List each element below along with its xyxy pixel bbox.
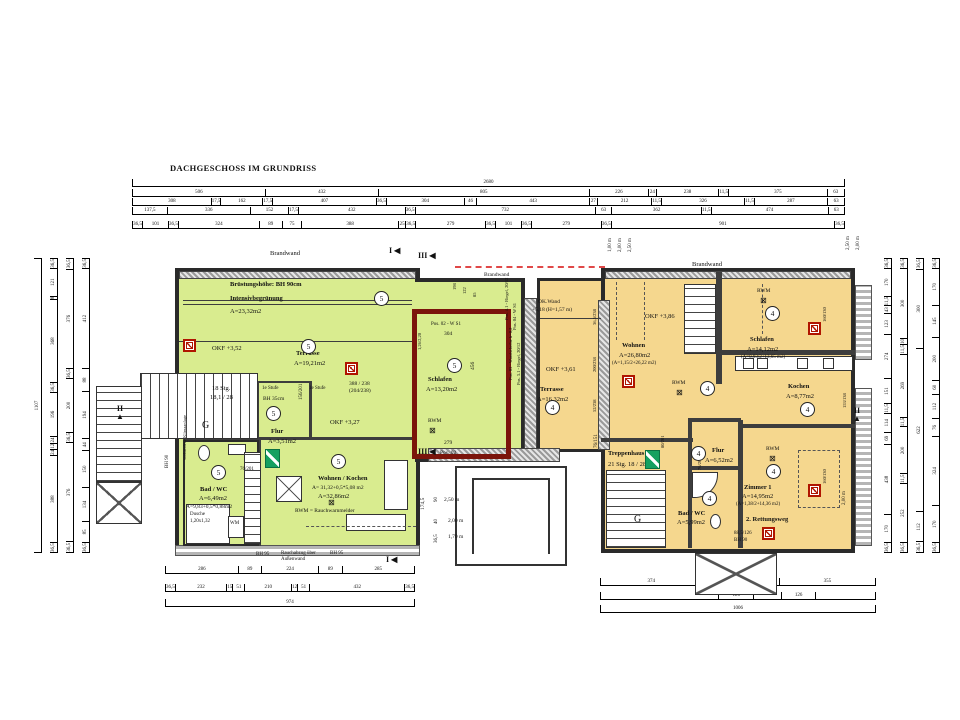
dimension-segment: 36,5 bbox=[66, 542, 73, 553]
plan-text: Wohnen bbox=[622, 342, 645, 349]
plan-text: RWM bbox=[428, 418, 441, 424]
dimension-segment: 11,5 bbox=[900, 418, 907, 428]
dimension-segment: 438 bbox=[884, 445, 891, 516]
dimension-segment: 36,5 bbox=[601, 221, 611, 228]
dimension-segment: 123 bbox=[884, 314, 891, 335]
dimension-chain-bottom-left-2: 36,52321551210125143236,5 bbox=[165, 584, 415, 592]
dimension-segment: 11,5 bbox=[900, 345, 907, 355]
plan-text: Bad / WC bbox=[200, 486, 227, 493]
dimension-segment: 36,5 bbox=[916, 542, 923, 553]
plan-text: 80/201 bbox=[660, 435, 665, 448]
smoke-detector-icon: ⊠ bbox=[328, 499, 335, 507]
plan-text: Brandwand bbox=[270, 250, 300, 257]
dimension-segment: 112 bbox=[916, 512, 923, 542]
dimension-segment: 17,5 bbox=[211, 198, 221, 205]
room-number-badge: 5 bbox=[301, 339, 316, 354]
plan-text: 40 bbox=[434, 519, 440, 524]
smoke-detector-icon: ⊠ bbox=[760, 297, 767, 305]
dimension-segment: 126 bbox=[781, 592, 816, 599]
schlafen-highlight-outline bbox=[412, 309, 511, 459]
dimension-segment: 506 bbox=[132, 189, 265, 196]
plan-text: 2,00 m bbox=[856, 236, 862, 250]
plan-text: 76/151 bbox=[594, 434, 600, 448]
escape-window-icon bbox=[808, 484, 821, 497]
dimension-segment: 11,5 bbox=[744, 198, 754, 205]
plan-text: G bbox=[202, 420, 209, 432]
plan-text: 90 bbox=[434, 497, 440, 502]
dimension-segment: 194 bbox=[82, 392, 89, 440]
roof-slope-dashed-box bbox=[798, 450, 840, 508]
dimension-segment: 11,5 bbox=[718, 189, 728, 196]
dimension-segment: 388 bbox=[50, 456, 57, 543]
dimension-segment: 46 bbox=[464, 198, 477, 205]
dimension-chain-left-3: 36,537636,520036,537636,5 bbox=[66, 258, 74, 553]
plan-text: 2,50 m bbox=[444, 497, 459, 503]
dimension-segment: 36,5 bbox=[884, 258, 891, 269]
roof-slope-dashed bbox=[616, 282, 617, 340]
dimension-segment: 170 bbox=[884, 515, 891, 543]
escape-window-icon bbox=[622, 375, 635, 388]
wall bbox=[716, 272, 722, 384]
dimension-segment: 279 bbox=[415, 221, 485, 228]
plan-text: 18 Stg. bbox=[212, 385, 230, 392]
appliance bbox=[797, 358, 808, 369]
dimension-segment: 101 bbox=[495, 221, 521, 228]
outside-stair-lower bbox=[96, 482, 142, 524]
plan-text: 85 bbox=[472, 293, 477, 298]
plan-text: Pos. 02 bbox=[440, 450, 456, 456]
plan-text: A=14,12m2 bbox=[747, 346, 778, 353]
plan-text: 52/238 bbox=[592, 399, 597, 412]
dimension-segment: 27 bbox=[589, 198, 597, 205]
dimension-segment: 36,5 bbox=[376, 198, 386, 205]
plan-text: 122 bbox=[462, 287, 467, 294]
plan-text: Flur bbox=[712, 447, 724, 454]
roof-slope-dashed bbox=[644, 282, 645, 340]
dimension-segment: 36,5 bbox=[932, 543, 939, 553]
dimension-segment: 308 bbox=[132, 198, 211, 205]
plan-text: G bbox=[634, 514, 641, 526]
dimension-segment: 25 bbox=[398, 221, 405, 228]
plan-text: A=14,95m2 bbox=[742, 493, 773, 500]
escape-window-icon bbox=[808, 322, 821, 335]
plan-text: 88,5/126 bbox=[734, 531, 752, 537]
dimension-chain-left-4: 36,585134150441948841236,5 bbox=[82, 258, 90, 553]
dimension-segment: 17,5 bbox=[288, 207, 298, 214]
dimension-segment: 287 bbox=[754, 198, 827, 205]
dimension-segment: 170 bbox=[932, 506, 939, 543]
plan-text: OK.Wand bbox=[538, 299, 560, 305]
dimension-segment: 200 bbox=[66, 379, 73, 432]
stairwell-left bbox=[140, 373, 258, 439]
escape-window-icon bbox=[345, 362, 358, 375]
smoke-detector-icon: ⊠ bbox=[429, 427, 436, 435]
dimension-segment: 85 bbox=[82, 522, 89, 544]
dimension-chain-right-4: 36,5170324761126020014517036,5 bbox=[932, 258, 940, 553]
plan-text: Bad / WC bbox=[678, 510, 705, 517]
room-number-badge: 5 bbox=[266, 406, 281, 421]
room-number-badge: 4 bbox=[700, 381, 715, 396]
plan-text: Außenwand bbox=[281, 557, 305, 563]
plan-text: RWM bbox=[672, 380, 685, 386]
plan-text: 1e Stufe bbox=[262, 386, 279, 392]
plan-text: 2,50 m bbox=[628, 238, 634, 252]
section-marker-iii: III ◀ bbox=[418, 447, 436, 456]
plan-text: 388 / 238 bbox=[349, 381, 370, 387]
roof-slope-dashed bbox=[306, 526, 416, 527]
dimension-segment: 732 bbox=[415, 207, 595, 214]
plan-text: 36,5/238 bbox=[592, 309, 597, 325]
dimension-segment: 36,5 bbox=[132, 221, 142, 228]
dimension-segment: 101 bbox=[142, 221, 168, 228]
plan-text: Pos. 04 - W S1 bbox=[512, 303, 517, 330]
dimension-segment: 279 bbox=[531, 221, 601, 228]
section-marker-ii: II ▲ bbox=[853, 407, 861, 423]
wall-hatch-window-right bbox=[598, 300, 610, 450]
dimension-segment: 269 bbox=[900, 355, 907, 418]
plan-text: Kochen bbox=[788, 383, 809, 390]
dimension-segment: 11,5 bbox=[651, 198, 661, 205]
plan-text: WM bbox=[230, 521, 239, 527]
section-marker-i: I ◀ bbox=[386, 555, 397, 564]
dimension-chain-bottom-right-3: 1006 bbox=[600, 605, 876, 613]
dimension-segment: 326 bbox=[661, 198, 744, 205]
dimension-segment: 36,5 bbox=[404, 584, 415, 591]
brandwand-dashed-line bbox=[455, 266, 605, 268]
dimension-segment: 11,5 bbox=[701, 207, 711, 214]
plan-text: Pos. 4.1 - Riegel, 20/12 bbox=[504, 278, 509, 320]
dimension-segment: 368 bbox=[50, 300, 57, 383]
dimension-chain-right-3: 36,511262230036,5 bbox=[916, 258, 924, 553]
room-number-badge: 4 bbox=[702, 491, 717, 506]
plan-text: A=13,20m2 bbox=[426, 386, 457, 393]
plan-text: Zimmer 1 bbox=[744, 484, 772, 491]
dimension-segment: 412 bbox=[82, 269, 89, 370]
dimension-segment: 60 bbox=[932, 381, 939, 395]
dimension-segment: 300 bbox=[916, 270, 923, 349]
plan-text: A=6,49m2 bbox=[199, 495, 227, 502]
dimension-segment: 76 bbox=[932, 419, 939, 436]
dimension-segment: 196 bbox=[50, 393, 57, 438]
dimension-segment: 88 bbox=[82, 369, 89, 391]
plan-text: Treppenhaus bbox=[608, 450, 644, 457]
dimension-segment: 407 bbox=[272, 198, 376, 205]
terrace-line bbox=[179, 341, 416, 342]
room-number-badge: 5 bbox=[374, 291, 389, 306]
plan-text: A=8,77m2 bbox=[786, 393, 814, 400]
plan-text: 2. Rettungsweg bbox=[746, 516, 788, 523]
dimension-segment: 152 bbox=[250, 207, 288, 214]
plan-text: A=6,52m2 bbox=[705, 457, 733, 464]
plan-text: RWM = Rauchwarnmelder bbox=[295, 508, 355, 514]
plan-text: Pos. 3.1 - Riegel, 20/12 bbox=[516, 343, 521, 385]
plan-text: 279 bbox=[444, 440, 452, 446]
dimension-segment: 901 bbox=[611, 221, 834, 228]
dimension-segment: 36,5 bbox=[405, 207, 415, 214]
dimension-segment: 63 bbox=[827, 189, 845, 196]
room-number-badge: 4 bbox=[766, 464, 781, 479]
wall bbox=[716, 350, 855, 355]
plan-text: RWM bbox=[757, 288, 770, 294]
plan-text: (A=0,93/2+13,65 m2) bbox=[741, 355, 785, 361]
dimension-segment: 36,5 bbox=[884, 543, 891, 553]
dimension-segment: 63 bbox=[828, 207, 845, 214]
section-marker-i: I ◀ bbox=[389, 246, 400, 255]
dimension-chain-top-5: 36,510136,532489753882536,527936,510136,… bbox=[132, 221, 845, 229]
room-number-badge: 4 bbox=[800, 402, 815, 417]
plan-text: 160/130 bbox=[822, 307, 827, 322]
sofa bbox=[346, 514, 406, 531]
plan-text: A=3,51m2 bbox=[268, 438, 296, 445]
plan-text: (A=1,15/2+26,22 m2) bbox=[612, 361, 656, 367]
dimension-chain-top-4: 137,533615217,543236,57326336211,547463 bbox=[132, 207, 845, 215]
dimension-segment: 112 bbox=[932, 395, 939, 420]
plan-text: 1,20x1,32 bbox=[190, 519, 210, 525]
dimension-segment: 145 bbox=[932, 306, 939, 338]
plan-text: 1,26/2,20 bbox=[417, 333, 422, 350]
dimension-segment: 432 bbox=[265, 189, 378, 196]
dimension-segment: 622 bbox=[916, 349, 923, 512]
dimension-segment: 324 bbox=[932, 437, 939, 507]
dimension-segment: 36,5 bbox=[900, 258, 907, 269]
dimension-segment: 376 bbox=[66, 270, 73, 369]
plan-text: 174,5 bbox=[420, 498, 426, 510]
plan-text: 153/138 bbox=[842, 393, 847, 408]
dimension-chain-right-1: 36,51704386911411,51512741234311,517036,… bbox=[884, 258, 892, 553]
dimension-segment: 24 bbox=[50, 437, 57, 443]
dimension-segment: 432 bbox=[309, 584, 404, 591]
plan-text: BH 95 bbox=[330, 551, 343, 557]
plan-text: (A=1,38/2+14,36 m2) bbox=[736, 502, 780, 508]
plan-text: Dusche bbox=[190, 512, 205, 518]
plan-text: vorhandene Klimaanlage bbox=[182, 415, 187, 460]
outside-stair bbox=[96, 386, 142, 482]
dimension-segment: 974 bbox=[165, 599, 415, 606]
plan-text: Wohnen / Kochen bbox=[318, 475, 367, 482]
plan-text: 198 bbox=[452, 283, 457, 290]
dimension-chain-right-2: 36,525211,520011,526911,51030036,5 bbox=[900, 258, 908, 553]
plan-text: BH 90 bbox=[165, 455, 171, 468]
room-number-badge: 5 bbox=[447, 358, 462, 373]
plan-text: A=19,21m2 bbox=[294, 360, 325, 367]
plan-text: Brandwand bbox=[692, 261, 722, 268]
plan-text: BH 90 bbox=[734, 538, 747, 544]
dimension-segment: 36,5 bbox=[66, 433, 73, 444]
dimension-chain-bottom-left-3: 974 bbox=[165, 599, 415, 607]
wall-hatch-top-left bbox=[179, 271, 416, 279]
plan-text: 156/201 bbox=[299, 384, 305, 400]
wall bbox=[688, 466, 741, 470]
plan-text: 1,70 m bbox=[448, 534, 463, 540]
plan-text: 2,00 m bbox=[448, 518, 463, 524]
dimension-segment: 151 bbox=[884, 379, 891, 404]
dimension-segment: 355 bbox=[779, 578, 876, 585]
dimension-segment: 374 bbox=[600, 578, 701, 585]
dimension-segment: 51 bbox=[297, 584, 309, 591]
dimension-segment: 362 bbox=[611, 207, 701, 214]
appliance bbox=[823, 358, 834, 369]
dimension-segment: 150 bbox=[82, 451, 89, 488]
dimension-segment: 805 bbox=[378, 189, 588, 196]
plan-text: A=26,80m2 bbox=[619, 352, 650, 359]
plan-text: OKF +3,52 bbox=[212, 345, 242, 352]
dimension-segment: 89 bbox=[318, 566, 341, 573]
dimension-segment: 44 bbox=[82, 439, 89, 451]
plan-text: Rauchabzug über bbox=[281, 551, 316, 557]
plan-text: 18,1 / 28 bbox=[210, 394, 233, 401]
room-number-badge: 5 bbox=[331, 454, 346, 469]
dimension-segment: 114 bbox=[884, 414, 891, 433]
plan-text: 2,00 m bbox=[842, 491, 848, 505]
dimension-segment: 36,5 bbox=[82, 258, 89, 269]
smoke-detector-icon: ⊠ bbox=[769, 455, 776, 463]
dimension-segment: 224 bbox=[261, 566, 318, 573]
plan-text: 36,5 bbox=[434, 534, 440, 543]
dimension-segment: 238 bbox=[656, 189, 719, 196]
washing-machine bbox=[228, 516, 244, 538]
shaft-inner bbox=[472, 478, 550, 554]
dimension-segment: 89 bbox=[238, 566, 261, 573]
room-number-badge: 4 bbox=[545, 400, 560, 415]
dimension-segment: 63 bbox=[827, 198, 845, 205]
dimension-segment: 274 bbox=[884, 335, 891, 379]
dimension-segment: 200 bbox=[932, 338, 939, 381]
dimension-segment: 11,5 bbox=[900, 474, 907, 484]
dimension-segment: 1107 bbox=[34, 258, 41, 553]
plan-text: OKF +3,27 bbox=[330, 419, 360, 426]
plan-text: 304 bbox=[444, 331, 452, 337]
stove bbox=[276, 476, 302, 502]
dimension-segment: 324 bbox=[178, 221, 259, 228]
dimension-segment: 2680 bbox=[132, 179, 845, 186]
wall bbox=[601, 438, 693, 442]
floor-plan-sheet: DACHGESCHOSS IM GRUNDRISS 2680 506432805… bbox=[0, 0, 960, 720]
plan-text: Brüstungshöhe: BH 90cm bbox=[230, 281, 302, 288]
plan-text: 76/201 bbox=[240, 467, 254, 473]
dimension-segment: 137,5 bbox=[132, 207, 167, 214]
dimension-segment: 36,5 bbox=[66, 369, 73, 380]
dimension-segment: 1006 bbox=[600, 605, 876, 612]
dimension-segment: 24 bbox=[648, 189, 655, 196]
plan-text: OKF +3,61 bbox=[546, 366, 576, 373]
plan-text: 200/238 bbox=[592, 357, 597, 372]
dimension-segment: 36,5 bbox=[50, 543, 57, 553]
plan-text: 21 Stg. 18 / 28 bbox=[608, 461, 646, 468]
dimension-segment: 69 bbox=[884, 433, 891, 445]
dimension-segment: 36,5 bbox=[405, 221, 415, 228]
dimension-segment: 36,5 bbox=[834, 221, 845, 228]
plan-text: Brandwand bbox=[484, 272, 509, 278]
wall bbox=[738, 420, 743, 548]
dimension-segment: 36,5 bbox=[165, 584, 175, 591]
floor-plan: 2680 5064328052262423811,537563 30817,51… bbox=[0, 0, 960, 720]
dimension-segment: 63 bbox=[595, 207, 611, 214]
plan-text: RWM bbox=[766, 446, 779, 452]
dimension-segment: 375 bbox=[728, 189, 827, 196]
dimension-chain-top-2: 5064328052262423811,537563 bbox=[132, 189, 845, 197]
dimension-segment: 300 bbox=[900, 269, 907, 339]
dimension-chain-top-3: 30817,516217,540736,5304464432721211,532… bbox=[132, 198, 845, 206]
wall bbox=[688, 418, 692, 470]
dimension-segment bbox=[815, 592, 876, 599]
dimension-segment: 17,5 bbox=[262, 198, 272, 205]
dimension-segment: 8 bbox=[50, 297, 57, 301]
plan-text: 456 bbox=[470, 362, 476, 370]
dimension-segment: 36,5 bbox=[82, 543, 89, 553]
dimension-segment: 75 bbox=[282, 221, 302, 228]
dimension-segment: 388 bbox=[301, 221, 398, 228]
plan-text: (204/238) bbox=[349, 388, 371, 394]
dimension-segment: 170 bbox=[932, 269, 939, 306]
dimension-segment: 89 bbox=[259, 221, 282, 228]
wall bbox=[743, 424, 855, 428]
plan-text: A=9,83+0,5*0,88m2 bbox=[186, 504, 232, 510]
dimension-segment: 36,5 bbox=[900, 543, 907, 553]
wall bbox=[688, 418, 741, 422]
dimension-segment: 212 bbox=[597, 198, 651, 205]
dimension-segment: 286 bbox=[165, 566, 238, 573]
plan-text: A=23,32m2 bbox=[230, 308, 261, 315]
dimension-segment: 36,5 bbox=[66, 258, 73, 270]
section-marker-ii: II ▲ bbox=[116, 405, 124, 421]
dimension-segment: 443 bbox=[476, 198, 589, 205]
dimension-segment: 12 bbox=[50, 444, 57, 450]
dimension-segment: 24 bbox=[50, 450, 57, 456]
dimension-segment: 36,5 bbox=[50, 383, 57, 393]
dimension-segment: 36,5 bbox=[521, 221, 531, 228]
plan-text: Terrasse bbox=[540, 386, 564, 393]
dimension-segment: 210 bbox=[244, 584, 291, 591]
dimension-segment: 285 bbox=[342, 566, 415, 573]
plan-text: Intensivbegrünung bbox=[230, 295, 283, 302]
dimension-segment: 36,5 bbox=[485, 221, 495, 228]
plan-text: 160/130 bbox=[822, 469, 827, 484]
dimension-segment: 121 bbox=[50, 269, 57, 297]
stairwell-right bbox=[606, 470, 666, 548]
wall-hatch-top-right bbox=[605, 271, 851, 279]
dimension-chain-bottom-left-1: 2868922489285 bbox=[165, 566, 415, 574]
dimension-segment: 51 bbox=[232, 584, 244, 591]
dimension-chain-left-1: 1107 bbox=[34, 258, 42, 553]
room-number-badge: 5 bbox=[211, 465, 226, 480]
plan-text: 2,00 m bbox=[618, 238, 624, 252]
dimension-segment: 11,5 bbox=[884, 297, 891, 307]
smoke-detector-icon: ⊠ bbox=[676, 389, 683, 397]
dimension-segment: 336 bbox=[167, 207, 250, 214]
plan-text: Flur bbox=[271, 428, 283, 435]
toilet bbox=[198, 445, 210, 461]
dimension-chain-left-2: 36,538824122419636,5368812136,5 bbox=[50, 258, 58, 553]
dimension-segment: 376 bbox=[66, 443, 73, 542]
plan-text: OKF +3,86 bbox=[645, 313, 675, 320]
toilet bbox=[710, 514, 721, 529]
escape-window-icon bbox=[762, 527, 775, 540]
dimension-segment: 474 bbox=[711, 207, 828, 214]
dimension-segment: 232 bbox=[175, 584, 227, 591]
kitchen-cabinets bbox=[244, 452, 261, 544]
plan-text: 2,50 m bbox=[846, 236, 852, 250]
balcony-wall-upper bbox=[855, 285, 872, 360]
dimension-segment: 36,5 bbox=[916, 258, 923, 270]
plan-text: 1,00 m bbox=[608, 238, 614, 252]
dimension-segment: 43 bbox=[884, 306, 891, 314]
stair-wohnen bbox=[684, 284, 716, 354]
section-marker-iii: III ◀ bbox=[418, 251, 436, 260]
escape-window-icon bbox=[183, 339, 196, 352]
emergency-exit-icon bbox=[645, 450, 660, 469]
dormer-below bbox=[695, 553, 777, 595]
plan-text: 1e Stufe bbox=[309, 386, 326, 392]
